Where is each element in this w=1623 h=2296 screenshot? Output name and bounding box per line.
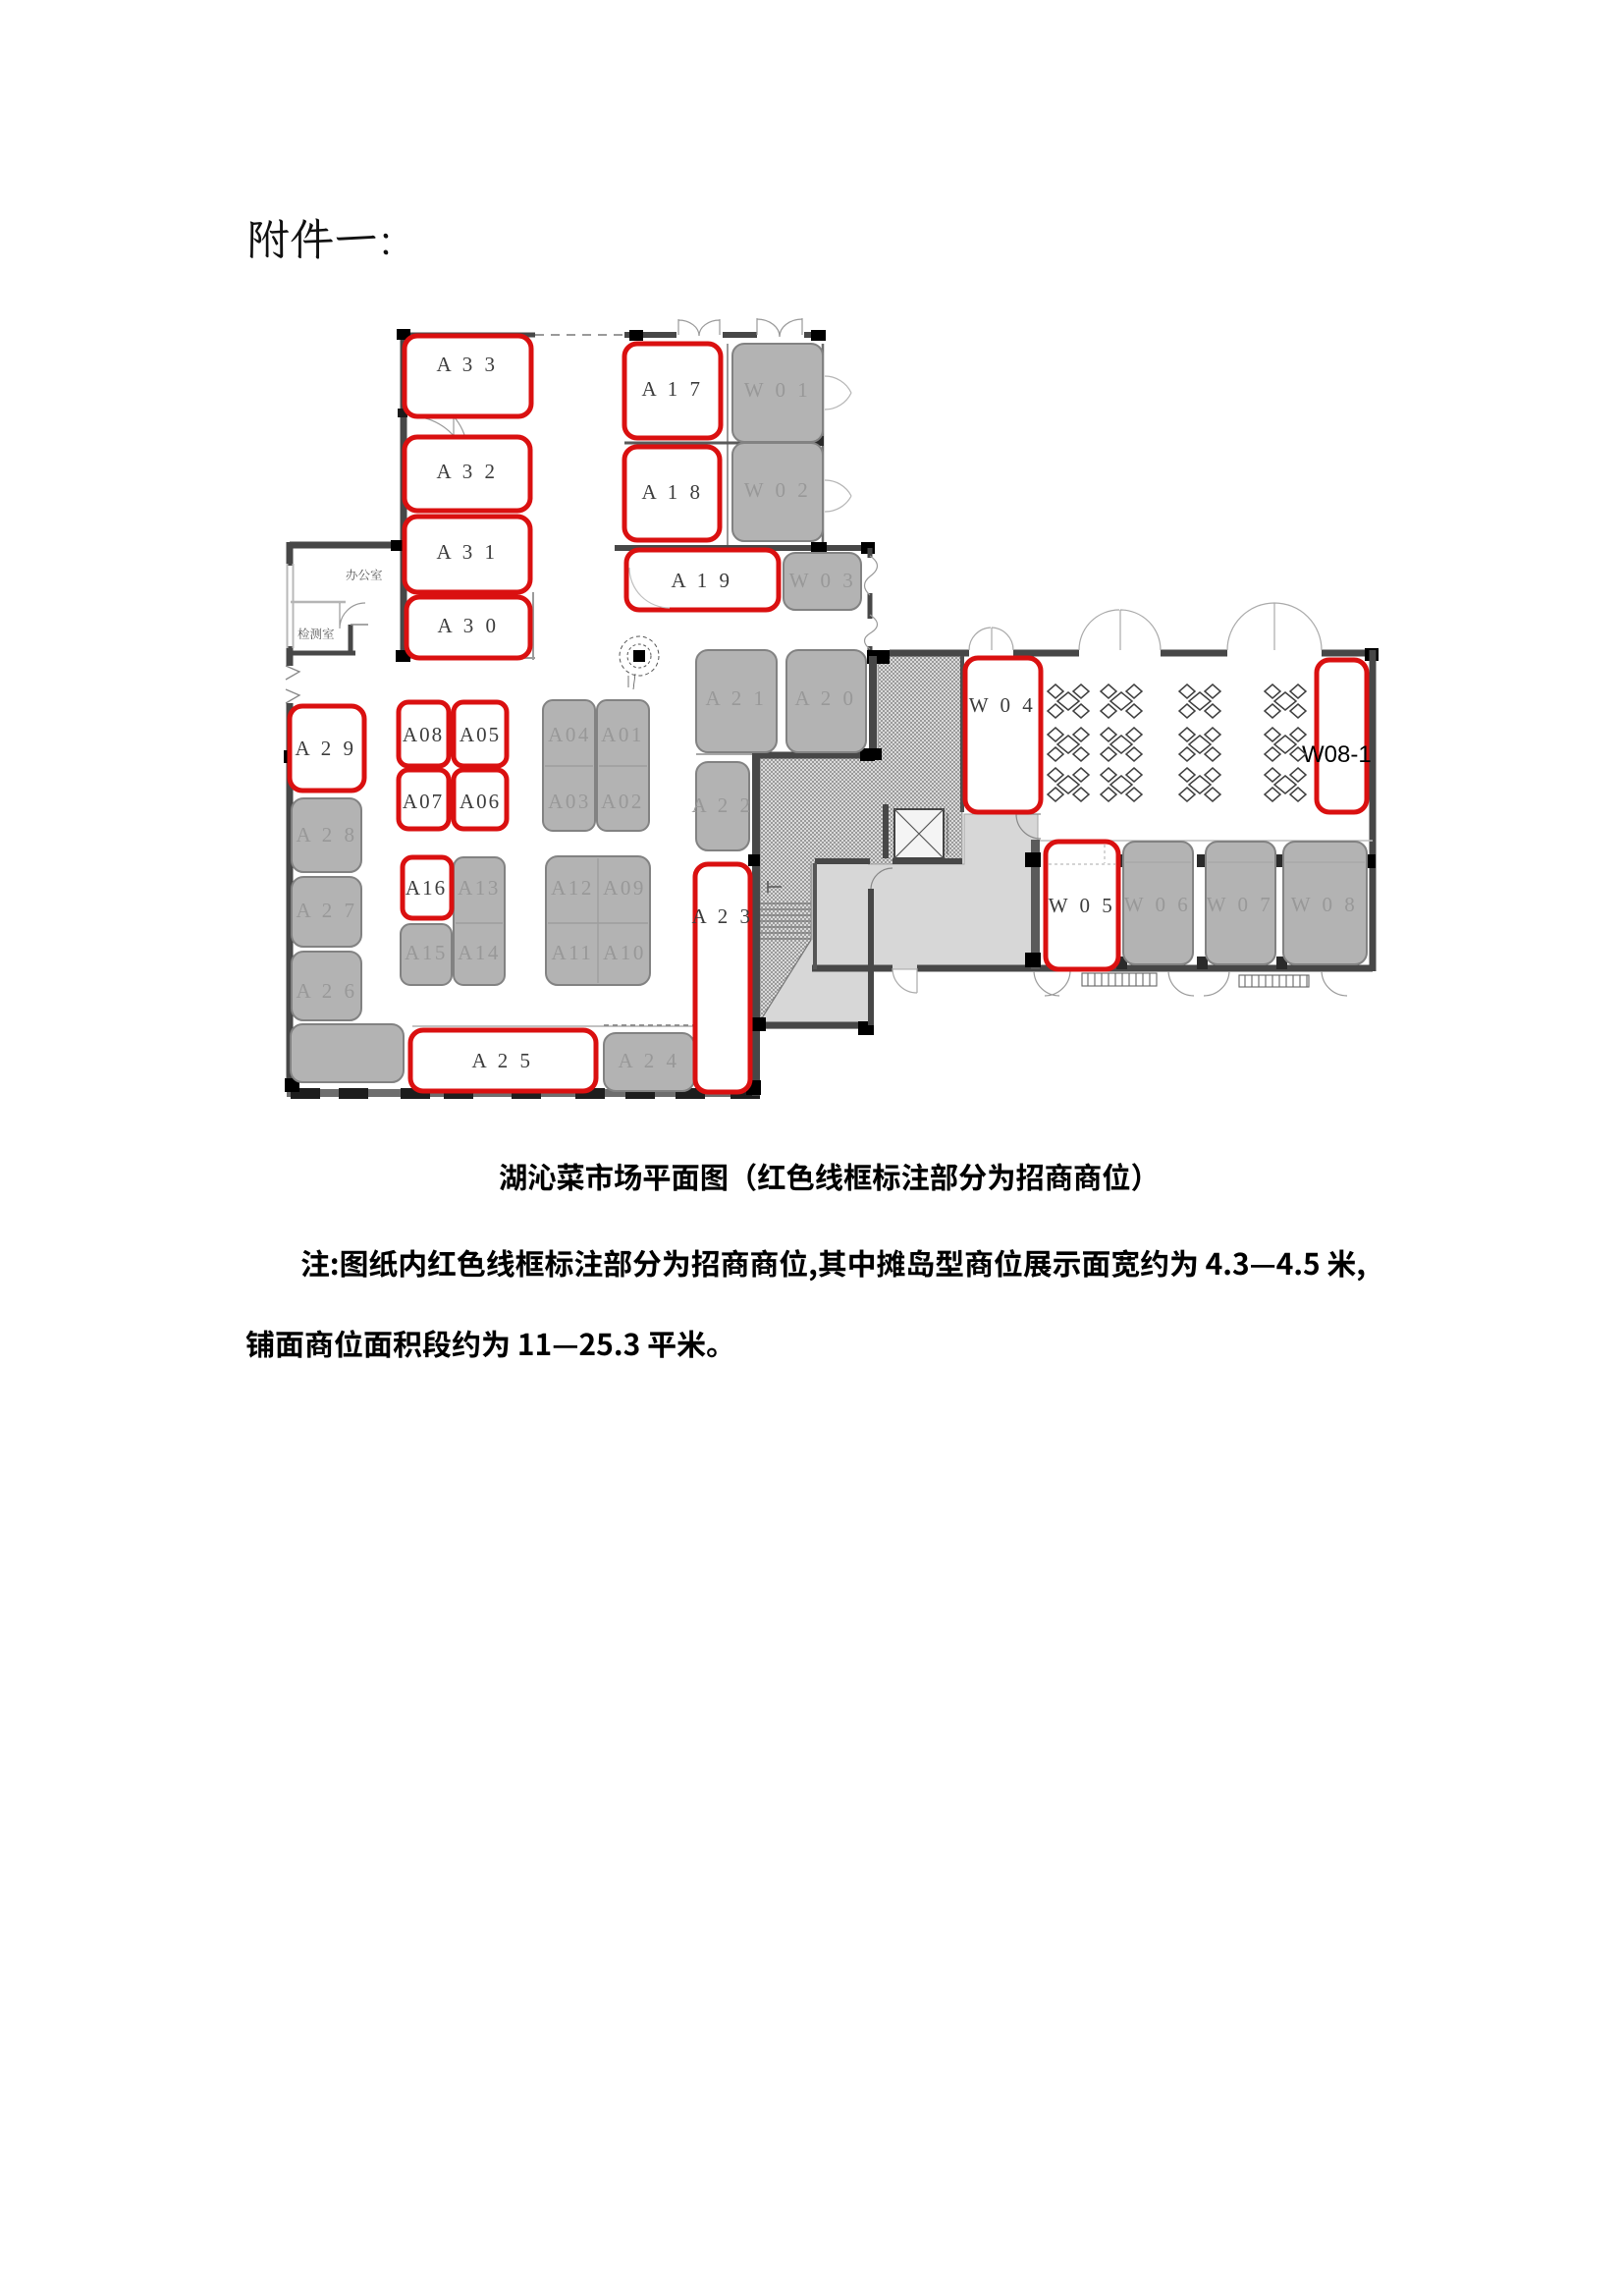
svg-text:W 0 7: W 0 7 (1207, 893, 1273, 916)
svg-text:W 0 1: W 0 1 (744, 378, 811, 402)
svg-text:A04: A04 (548, 723, 591, 746)
svg-text:A15: A15 (405, 941, 448, 964)
svg-text:A 2 8: A 2 8 (296, 823, 357, 847)
svg-text:W 0 5: W 0 5 (1049, 894, 1115, 917)
svg-text:A09: A09 (603, 876, 646, 900)
svg-text:A06: A06 (460, 790, 501, 813)
svg-text:A08: A08 (403, 723, 444, 746)
svg-text:A 1 8: A 1 8 (641, 480, 703, 504)
svg-text:A 3 1: A 3 1 (436, 540, 498, 564)
svg-text:A02: A02 (601, 790, 644, 813)
svg-text:A 2 4: A 2 4 (618, 1049, 679, 1072)
svg-text:A 2 2: A 2 2 (691, 793, 753, 817)
svg-text:A01: A01 (601, 723, 644, 746)
svg-text:A 2 5: A 2 5 (471, 1049, 533, 1072)
svg-text:A14: A14 (458, 941, 501, 964)
svg-text:A 2 0: A 2 0 (794, 686, 856, 710)
svg-text:A 1 7: A 1 7 (641, 377, 703, 401)
svg-text:W 0 8: W 0 8 (1291, 893, 1358, 916)
svg-text:A 2 6: A 2 6 (296, 979, 357, 1003)
svg-text:A 2 7: A 2 7 (296, 899, 357, 922)
svg-text:W 0 3: W 0 3 (789, 569, 856, 592)
svg-text:A05: A05 (460, 723, 501, 746)
svg-text:A 2 1: A 2 1 (705, 686, 767, 710)
svg-text:A 2 3: A 2 3 (691, 904, 753, 928)
svg-text:A16: A16 (406, 876, 447, 900)
svg-text:W 0 2: W 0 2 (744, 478, 811, 502)
svg-text:A11: A11 (552, 941, 594, 964)
svg-text:A03: A03 (548, 790, 591, 813)
svg-text:W 0 4: W 0 4 (969, 693, 1036, 717)
svg-text:W 0 6: W 0 6 (1124, 893, 1191, 916)
svg-text:A 3 3: A 3 3 (436, 353, 498, 376)
svg-text:A 3 2: A 3 2 (436, 460, 498, 483)
svg-text:A12: A12 (551, 876, 594, 900)
svg-text:W08-1: W08-1 (1302, 741, 1372, 768)
svg-text:A07: A07 (403, 790, 444, 813)
svg-text:A 2 9: A 2 9 (295, 737, 356, 760)
svg-text:A 1 9: A 1 9 (671, 569, 732, 592)
svg-text:A10: A10 (603, 941, 646, 964)
svg-text:A13: A13 (458, 876, 501, 900)
svg-text:A 3 0: A 3 0 (437, 614, 499, 637)
